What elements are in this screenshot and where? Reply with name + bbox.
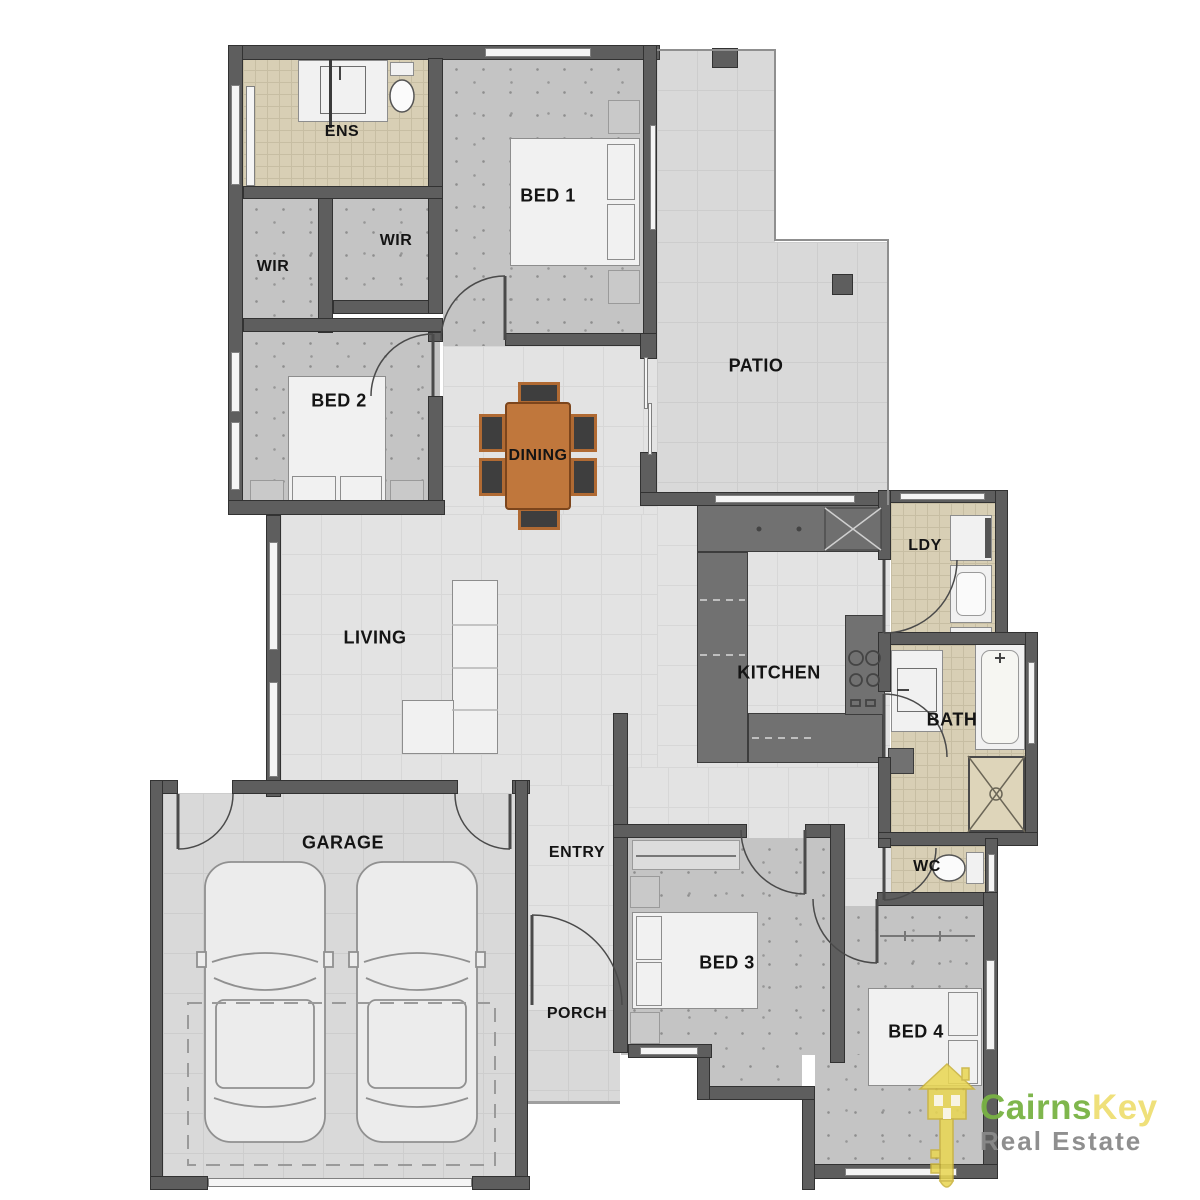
window	[988, 854, 995, 892]
washer-detail	[985, 518, 991, 558]
wall-segment	[878, 632, 891, 692]
kitchen-bench-top	[697, 505, 883, 552]
bed3-pillow	[636, 916, 662, 960]
dining-chair	[518, 382, 560, 404]
ens-toilet-tank	[390, 62, 414, 76]
bed3-robe	[632, 840, 740, 870]
window	[986, 960, 995, 1050]
wall-segment	[613, 713, 628, 1053]
window	[650, 125, 656, 230]
window	[269, 542, 278, 650]
wall-segment	[232, 780, 458, 794]
bathtub-inner	[981, 650, 1019, 744]
wall-segment	[505, 333, 648, 346]
window	[1028, 662, 1035, 744]
room-label-bed1: BED 1	[520, 186, 576, 207]
wall-segment	[613, 824, 747, 838]
wall-segment	[802, 1086, 815, 1190]
brand-tagline: Real Estate	[980, 1128, 1158, 1154]
sliding-door-panel	[648, 403, 652, 455]
room-label-wc: WC	[913, 858, 941, 876]
room-label-bed2: BED 2	[311, 391, 367, 412]
wall-segment	[878, 632, 1038, 645]
window	[640, 1047, 698, 1055]
window	[269, 682, 278, 777]
bed1-pillow	[607, 144, 635, 200]
room-label-garage: GARAGE	[302, 833, 384, 854]
wall-segment	[995, 490, 1008, 640]
wall-segment	[697, 1086, 815, 1100]
room-label-ens: ENS	[325, 123, 359, 141]
bed3-side-table	[630, 1012, 660, 1044]
bath-sink	[897, 668, 937, 712]
wall-segment	[228, 45, 660, 60]
bed1-side-table	[608, 270, 640, 304]
window	[231, 352, 240, 412]
room-label-living: LIVING	[343, 628, 406, 649]
entry-floor	[528, 785, 615, 1010]
laundry-tub-bowl	[956, 572, 986, 616]
wall-segment	[515, 780, 528, 1190]
patio-floor-a	[657, 50, 775, 242]
brand-part-green: Cairns	[980, 1088, 1092, 1127]
wall-segment	[472, 1176, 530, 1190]
patio-post	[712, 48, 738, 68]
agency-logo: CairnsKey Real Estate	[918, 1062, 1158, 1194]
room-label-wir-left: WIR	[257, 258, 290, 276]
window	[231, 422, 240, 490]
dining-chair	[479, 414, 505, 452]
room-label-bed3: BED 3	[699, 953, 755, 974]
bed3-side-table	[630, 876, 660, 908]
wall-segment	[877, 892, 998, 906]
bed1-side-table	[608, 100, 640, 134]
wc-toilet-tank	[966, 852, 984, 884]
garage-door	[208, 1178, 472, 1187]
wall-segment	[428, 198, 443, 314]
wall-segment	[333, 300, 443, 314]
porch-floor	[528, 1010, 620, 1104]
wir-right-floor	[333, 198, 438, 314]
dining-chair	[479, 458, 505, 496]
floor-plan: ENS BED 1 WIR WIR BED 2 PATIO DINING LIV…	[0, 0, 1200, 1200]
bed4-pillow	[948, 992, 978, 1036]
dining-chair	[571, 414, 597, 452]
kitchen-pantry	[697, 552, 748, 763]
brand-name: CairnsKey	[980, 1090, 1158, 1125]
wall-segment	[150, 780, 163, 1190]
sofa-chaise	[402, 700, 454, 754]
wall-segment	[243, 318, 443, 332]
ens-screen-divider	[329, 60, 332, 128]
window	[485, 48, 591, 57]
kitchen-bench-bottom	[748, 713, 883, 763]
wall-segment	[878, 838, 891, 848]
dining-chair	[571, 458, 597, 496]
wall-segment	[878, 490, 891, 560]
wall-segment	[830, 824, 845, 1063]
dining-chair	[518, 508, 560, 530]
room-label-ldy: LDY	[908, 537, 942, 555]
bed3-pillow	[636, 962, 662, 1006]
wall-segment	[428, 332, 443, 342]
window	[231, 85, 240, 185]
wall-segment	[228, 500, 445, 515]
sliding-door-panel	[644, 357, 648, 409]
sofa	[452, 580, 498, 754]
bath-cabinet	[888, 748, 914, 774]
room-label-bed4: BED 4	[888, 1022, 944, 1043]
wall-segment	[640, 333, 657, 359]
room-label-entry: ENTRY	[549, 844, 605, 862]
room-label-kitchen: KITCHEN	[737, 663, 821, 684]
wall-segment	[428, 58, 443, 198]
window	[715, 495, 855, 503]
wall-segment	[150, 1176, 208, 1190]
room-label-porch: PORCH	[547, 1005, 607, 1023]
brand-part-yellow: Key	[1092, 1088, 1158, 1127]
window	[900, 493, 985, 500]
wall-segment	[243, 186, 443, 199]
key-house-icon	[918, 1062, 976, 1194]
bed1-pillow	[607, 204, 635, 260]
room-label-wir-right: WIR	[380, 232, 413, 250]
room-label-dining: DINING	[509, 447, 568, 465]
patio-post	[832, 274, 853, 295]
room-label-bath: BATH	[927, 710, 978, 731]
wall-segment	[878, 832, 1038, 846]
wall-segment	[428, 396, 443, 515]
ens-shower-screen	[246, 86, 255, 186]
shower	[968, 756, 1025, 832]
wall-segment	[318, 198, 333, 333]
room-label-patio: PATIO	[729, 356, 784, 377]
ens-sink	[320, 66, 366, 114]
